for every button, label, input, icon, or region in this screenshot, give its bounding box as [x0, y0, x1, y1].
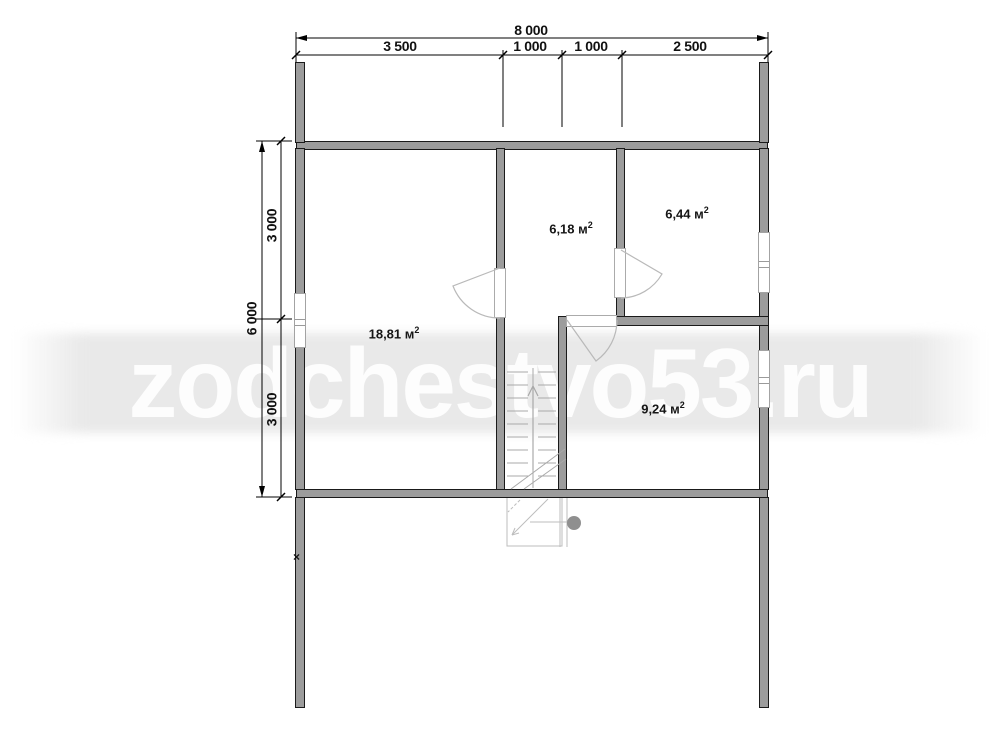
room-area-label-1: 18,81 м2: [344, 325, 444, 341]
window-right-2: [758, 350, 770, 408]
understair-icon: [507, 498, 567, 547]
wall-interior-left-lower: [496, 317, 505, 490]
window-right-1: [758, 232, 770, 293]
room-area-label-2: 6,18 м2: [521, 220, 621, 236]
dimension-arrows-left: [259, 141, 265, 497]
room-area-value: 6,44 м: [665, 206, 704, 221]
window-mullion: [759, 261, 769, 268]
dim-total-height: 6 000: [246, 289, 259, 349]
dimension-lines-left: [256, 141, 292, 497]
wall-bottom: [296, 489, 768, 498]
room-area-label-3: 6,44 м2: [637, 205, 737, 221]
dim-segment-1000b: 1 000: [561, 40, 621, 53]
window-left: [294, 293, 306, 348]
stair-post-icon: [567, 516, 581, 530]
dim-segment-2500: 2 500: [660, 40, 720, 53]
wall-stub-bottom-left: [295, 497, 305, 708]
wall-right-upper: [759, 148, 769, 233]
wall-stair-right: [558, 316, 567, 490]
room-area-sup: 2: [704, 205, 709, 215]
wall-break-marker: ×: [290, 551, 303, 564]
dimension-ticks-left: [277, 137, 285, 501]
door-opening-hall-room3: [614, 248, 626, 298]
wall-stub-bottom-right: [759, 497, 769, 708]
wall-stub-top-left: [295, 62, 305, 143]
dim-total-width: 8 000: [501, 24, 561, 37]
wall-left-upper: [295, 148, 305, 294]
room-area-sup: 2: [414, 325, 419, 335]
wall-interior-left-upper: [496, 148, 505, 269]
dim-segment-3000b: 3 000: [266, 380, 279, 440]
dim-segment-1000a: 1 000: [500, 40, 560, 53]
dim-segment-3500: 3 500: [370, 40, 430, 53]
room-area-value: 18,81 м: [369, 326, 415, 341]
wall-stub-top-right: [759, 62, 769, 143]
room-area-sup: 2: [680, 400, 685, 410]
wall-top: [296, 141, 768, 150]
room-area-value: 9,24 м: [641, 401, 680, 416]
door-opening-hall-room1: [494, 268, 506, 318]
window-mullion: [295, 319, 305, 326]
wall-right-lower: [759, 407, 769, 490]
room-area-label-4: 9,24 м2: [613, 400, 713, 416]
wall-mid-horizontal: [616, 316, 769, 326]
room-area-value: 6,18 м: [549, 221, 588, 236]
wall-left-lower: [295, 347, 305, 490]
room-area-sup: 2: [588, 220, 593, 230]
door-opening-hall-room4: [566, 315, 617, 327]
window-mullion: [759, 377, 769, 384]
dim-segment-3000a: 3 000: [266, 196, 279, 256]
floor-plan-canvas: zodchestvo53.ru: [0, 0, 1000, 750]
